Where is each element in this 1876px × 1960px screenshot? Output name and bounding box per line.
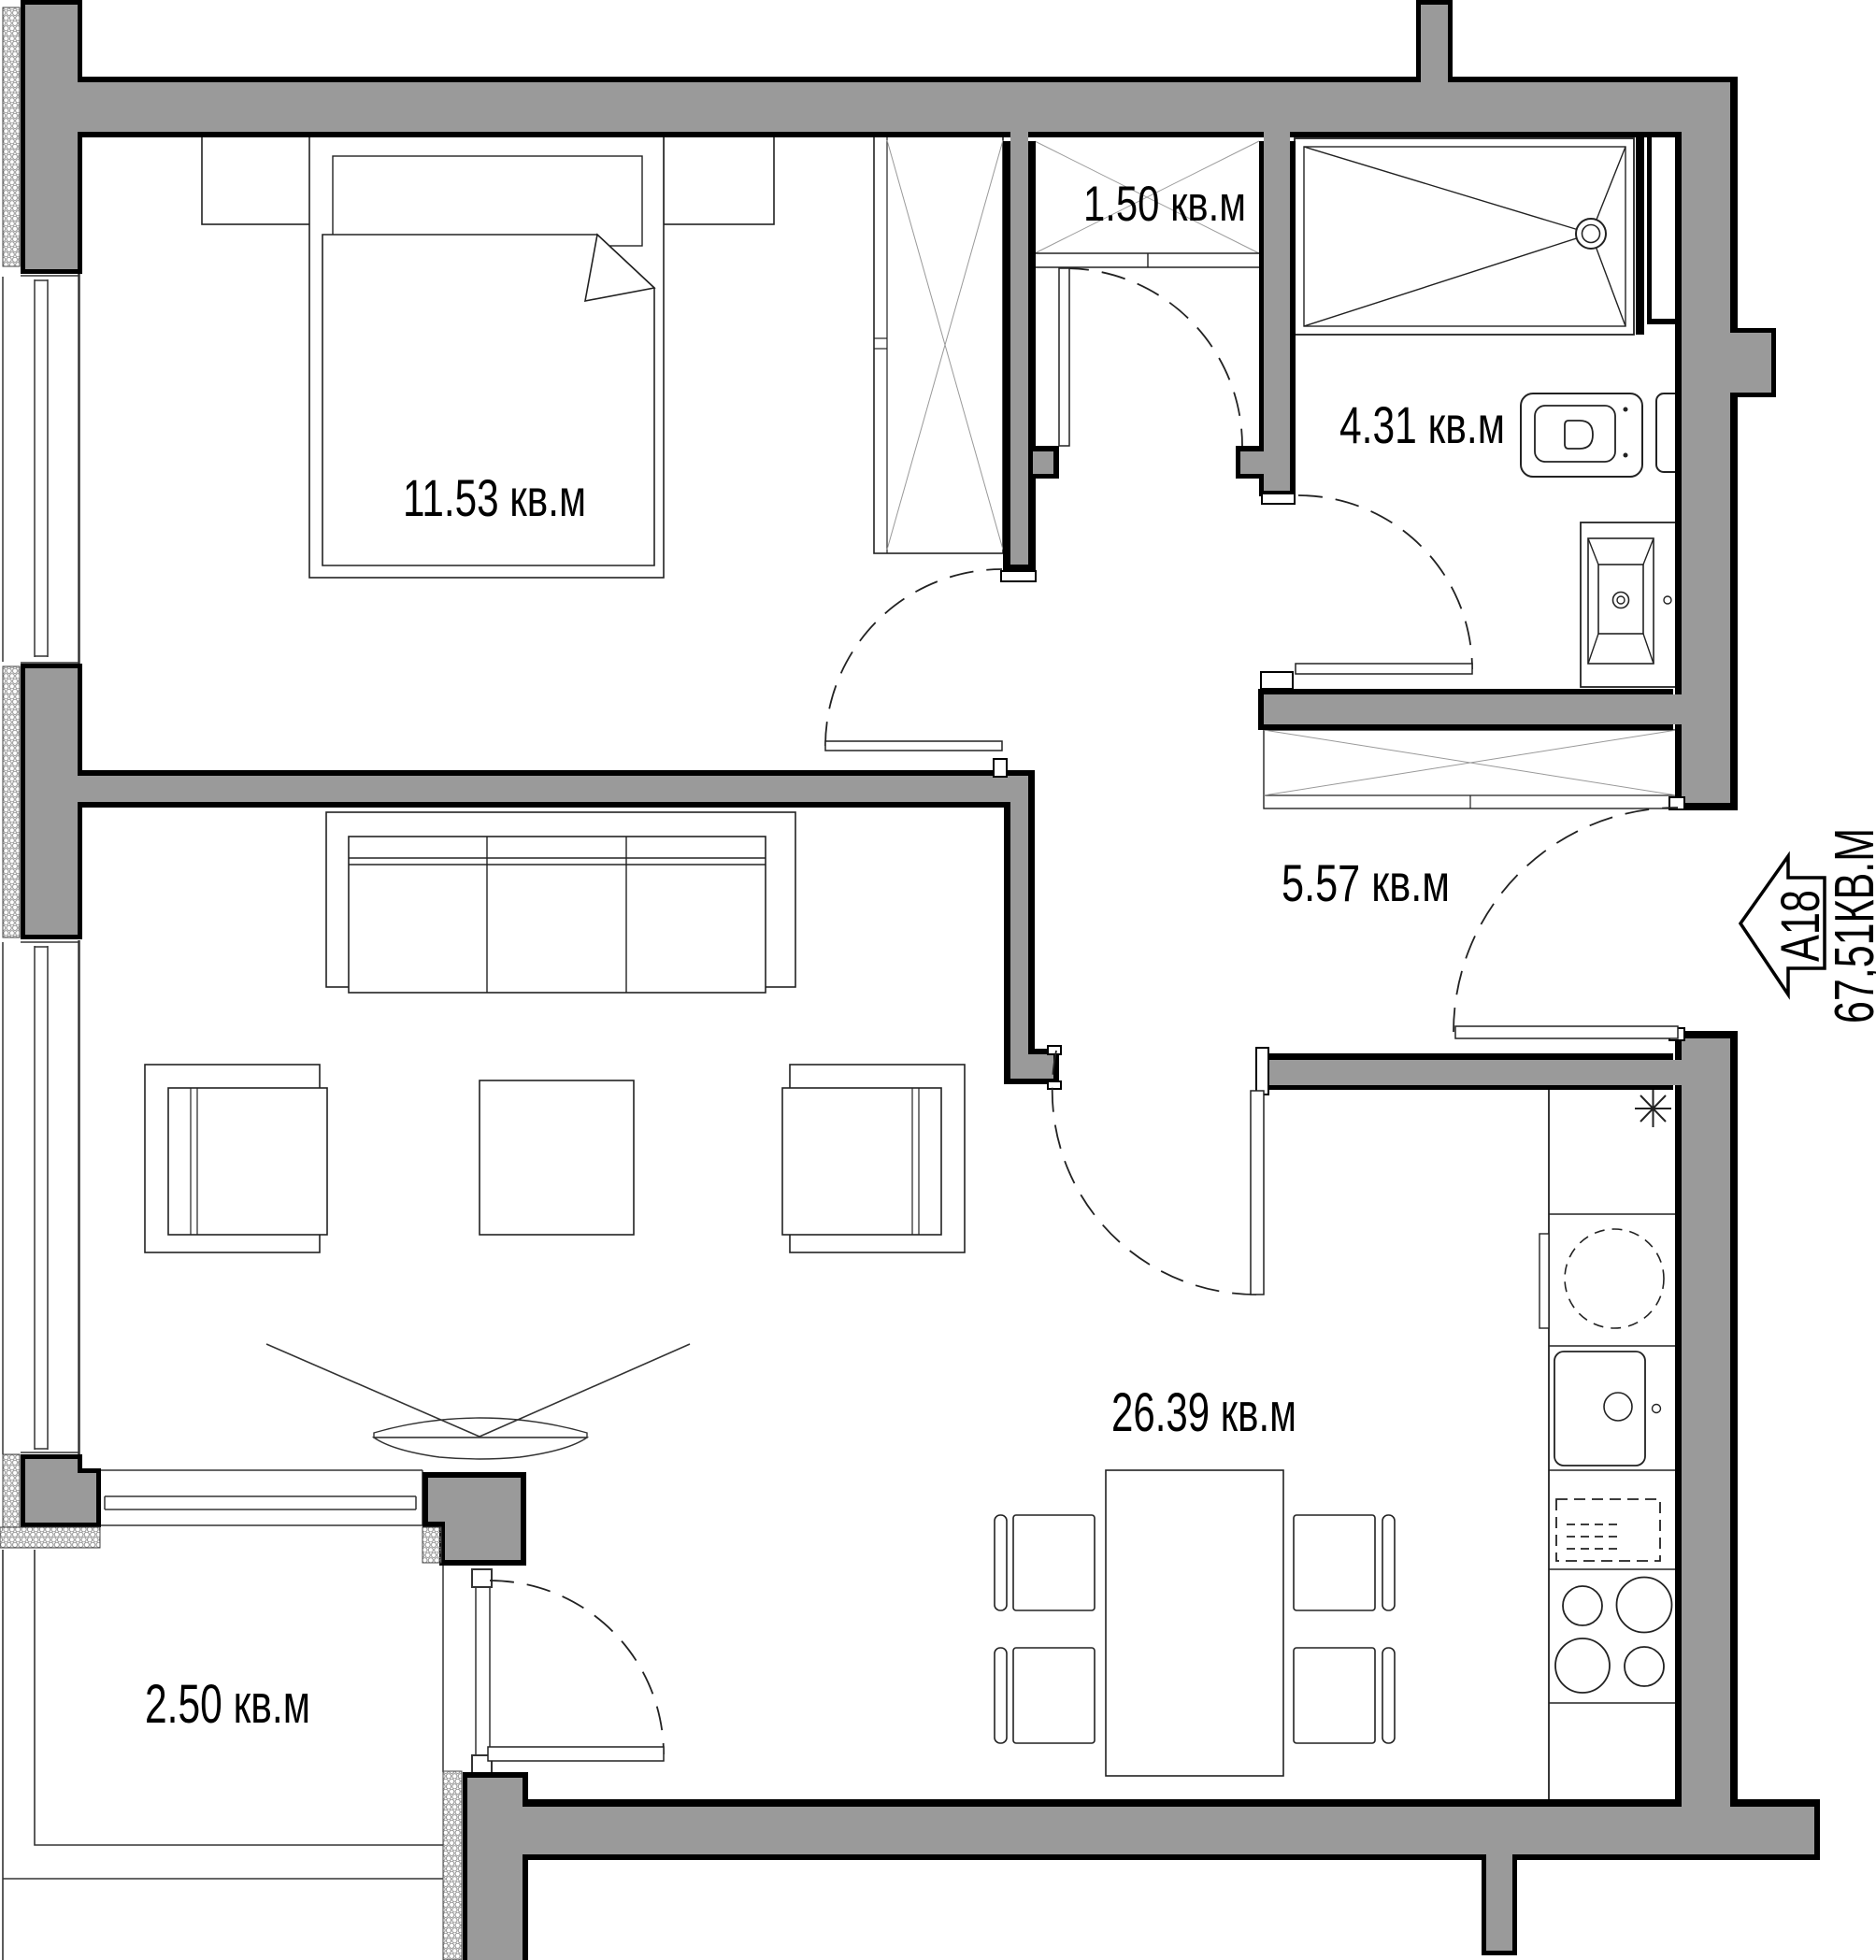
svg-text:26.39 кв.м: 26.39 кв.м [1111, 1382, 1296, 1443]
svg-text:4.31 кв.м: 4.31 кв.м [1339, 395, 1505, 454]
svg-text:5.57 кв.м: 5.57 кв.м [1282, 853, 1450, 912]
svg-text:67,51КВ.М: 67,51КВ.М [1824, 828, 1876, 1023]
svg-text:1.50 кв.м: 1.50 кв.м [1083, 177, 1246, 232]
svg-text:2.50 кв.м: 2.50 кв.м [145, 1674, 310, 1735]
svg-text:11.53 кв.м: 11.53 кв.м [403, 468, 586, 527]
svg-text:A18: A18 [1770, 890, 1831, 962]
